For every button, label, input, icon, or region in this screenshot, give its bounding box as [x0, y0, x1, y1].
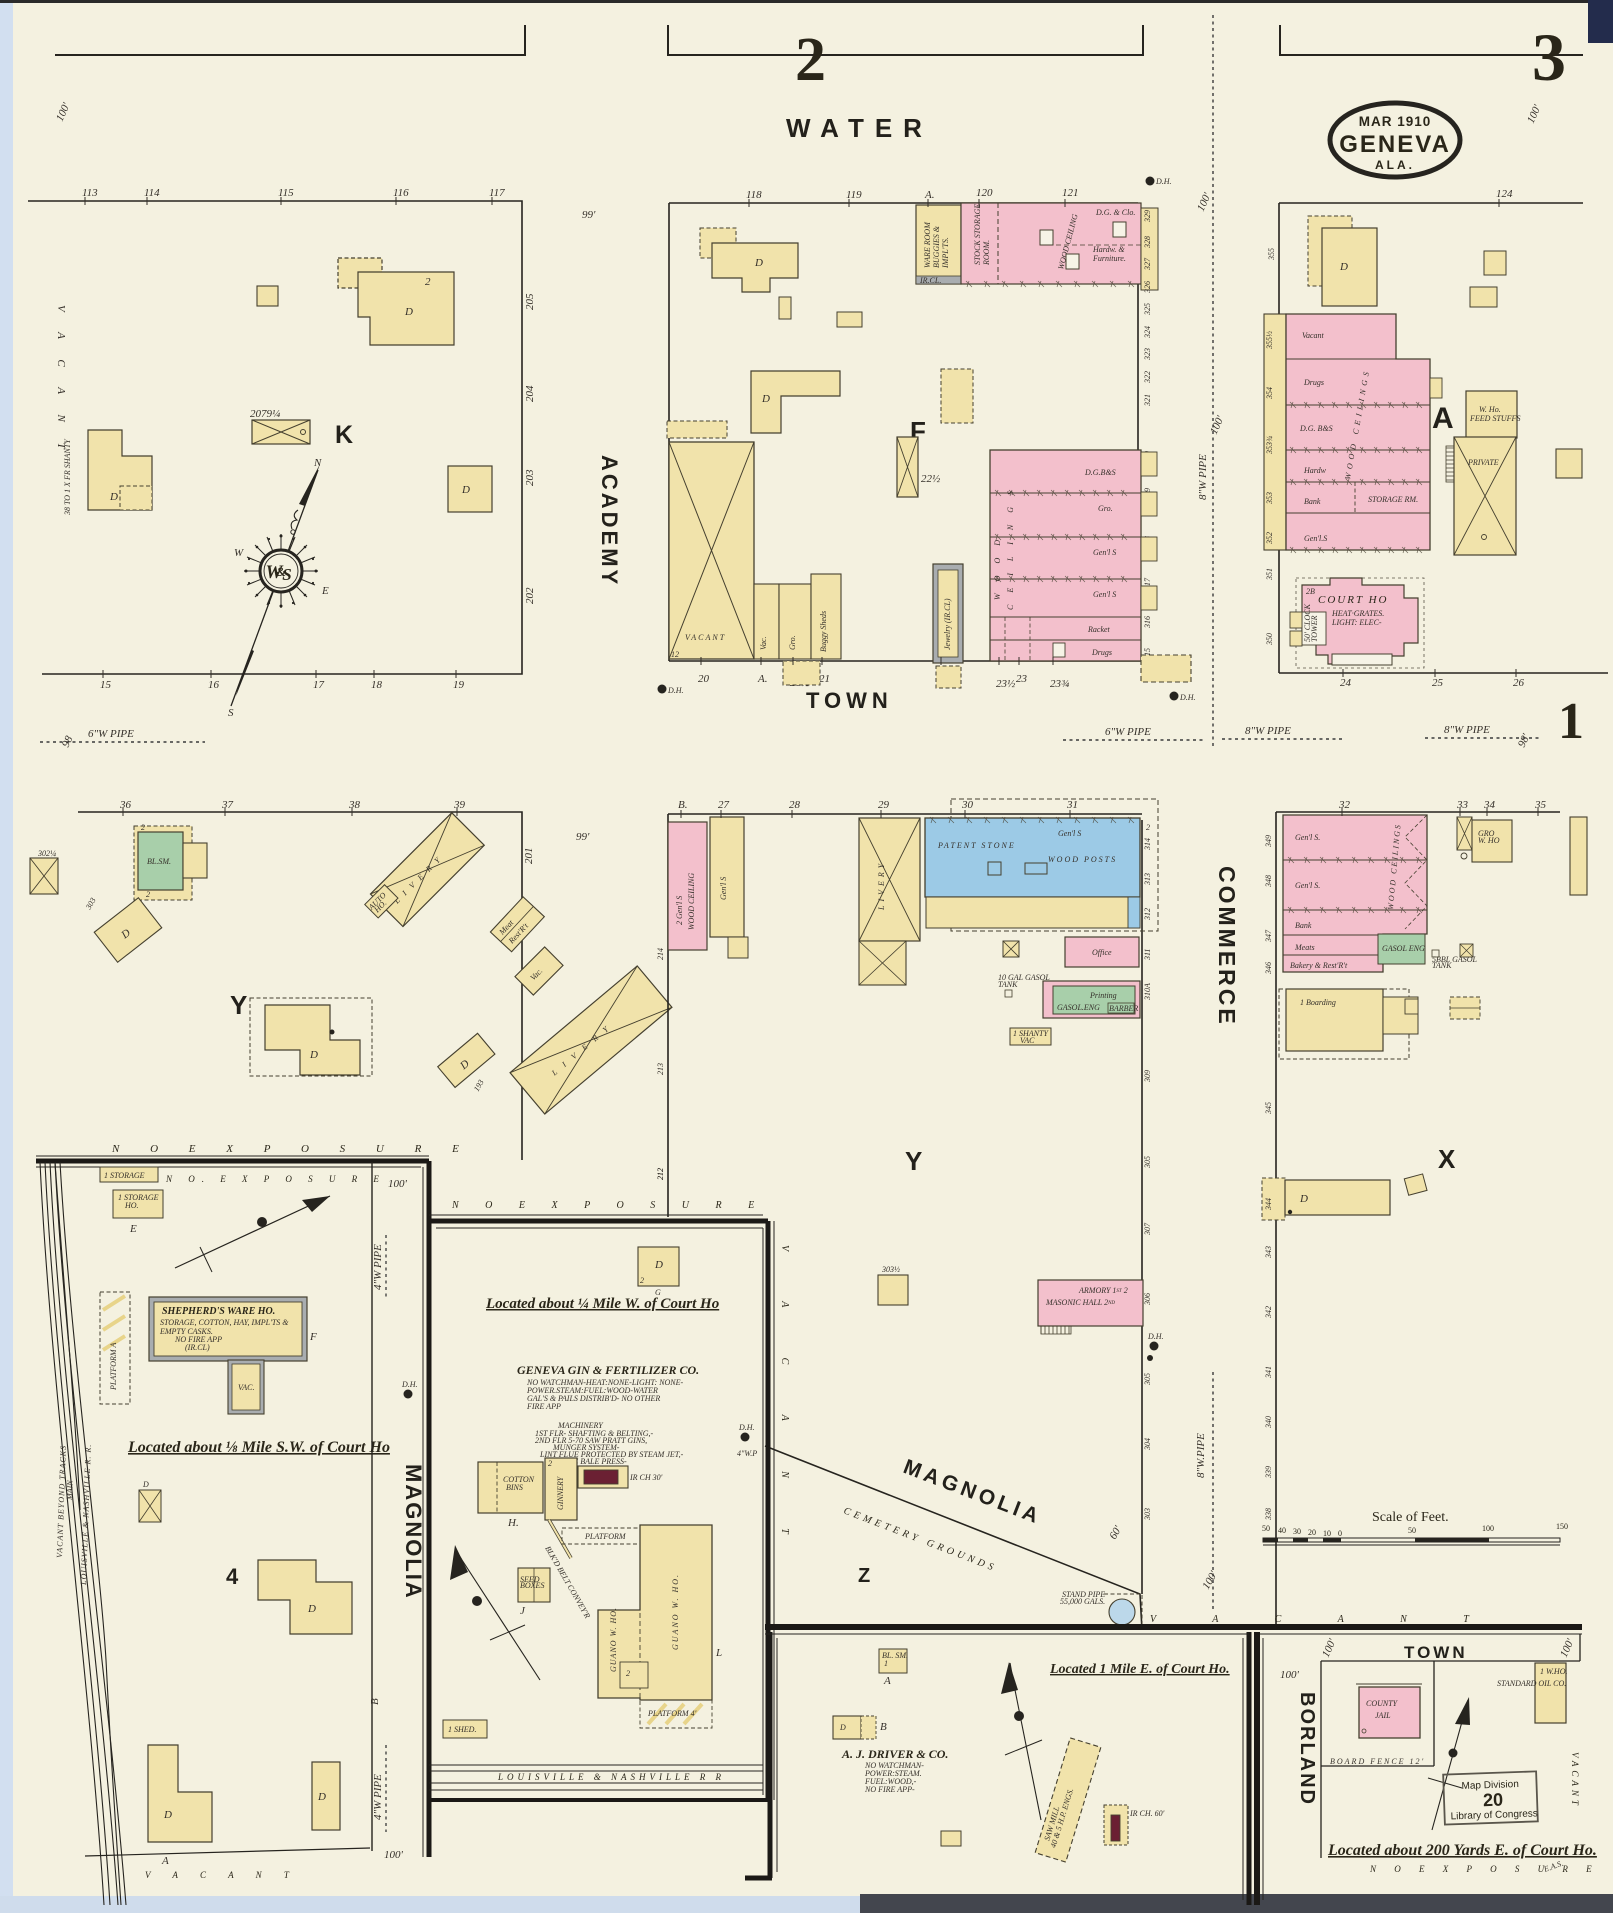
- svg-text:302¼: 302¼: [37, 849, 56, 858]
- svg-text:B: B: [880, 1721, 887, 1733]
- svg-text:Furniture.: Furniture.: [1092, 254, 1126, 263]
- svg-text:8"W PIPE: 8"W PIPE: [1444, 724, 1490, 736]
- svg-text:A: A: [883, 1675, 891, 1687]
- svg-text:8"W PIPE: 8"W PIPE: [1197, 454, 1209, 500]
- svg-text:GASOL.ENG: GASOL.ENG: [1057, 1003, 1100, 1012]
- svg-text:D.H.: D.H.: [1155, 177, 1172, 186]
- svg-text:A. J. DRIVER & CO.: A. J. DRIVER & CO.: [841, 1747, 948, 1761]
- svg-text:D: D: [761, 393, 770, 405]
- svg-text:325: 325: [1143, 303, 1152, 316]
- svg-text:IR.CL.: IR.CL.: [919, 276, 941, 285]
- svg-text:COUNTY: COUNTY: [1366, 1699, 1399, 1708]
- svg-text:201: 201: [523, 848, 535, 865]
- svg-text:32: 32: [1338, 799, 1351, 811]
- svg-text:TOWN: TOWN: [806, 688, 893, 713]
- svg-text:Gen'l S: Gen'l S: [719, 877, 728, 900]
- svg-text:119: 119: [846, 189, 862, 201]
- svg-text:100: 100: [1482, 1524, 1494, 1533]
- svg-text:Hardw. &: Hardw. &: [1092, 245, 1125, 254]
- svg-text:118: 118: [746, 189, 762, 201]
- svg-text:D: D: [1299, 1193, 1308, 1205]
- svg-text:100': 100': [384, 1849, 404, 1861]
- svg-text:D: D: [317, 1791, 326, 1803]
- svg-text:115: 115: [278, 187, 294, 199]
- svg-text:354: 354: [1265, 387, 1274, 400]
- svg-text:339: 339: [1264, 1466, 1273, 1479]
- svg-text:304: 304: [1143, 1438, 1152, 1451]
- svg-text:99': 99': [576, 831, 590, 843]
- svg-text:0: 0: [1338, 1529, 1342, 1538]
- svg-text:IR CH. 60': IR CH. 60': [1129, 1809, 1165, 1818]
- svg-text:Gen'l.S: Gen'l.S: [1304, 534, 1327, 543]
- svg-text:21: 21: [819, 673, 830, 685]
- svg-text:BOARD FENCE 12': BOARD FENCE 12': [1330, 1757, 1425, 1766]
- svg-text:HEAT·GRATES.: HEAT·GRATES.: [1331, 609, 1384, 618]
- svg-text:IMPL'TS.: IMPL'TS.: [941, 237, 950, 269]
- svg-text:Gen'l S: Gen'l S: [1058, 829, 1081, 838]
- svg-text:W. Ho.: W. Ho.: [1479, 405, 1501, 414]
- svg-text:313: 313: [1143, 873, 1152, 886]
- svg-text:1: 1: [1558, 693, 1584, 750]
- svg-text:W. HO: W. HO: [1478, 836, 1500, 845]
- svg-text:NO FIRE APP-: NO FIRE APP-: [864, 1785, 915, 1794]
- svg-text:MAR 1910: MAR 1910: [1359, 114, 1432, 129]
- svg-text:344: 344: [1264, 1198, 1273, 1211]
- svg-text:323: 323: [1143, 348, 1152, 361]
- svg-text:116: 116: [393, 187, 409, 199]
- svg-text:D: D: [461, 484, 470, 496]
- svg-text:124: 124: [1496, 188, 1513, 200]
- svg-text:23¾: 23¾: [1050, 678, 1069, 690]
- svg-text:212: 212: [656, 1168, 665, 1180]
- svg-text:D.H.: D.H.: [401, 1380, 418, 1389]
- svg-text:202: 202: [524, 587, 536, 604]
- svg-text:D.H.: D.H.: [1179, 693, 1196, 702]
- svg-text:Gro.: Gro.: [1098, 504, 1113, 513]
- svg-text:2: 2: [425, 276, 431, 288]
- svg-text:Located about ⅛ Mile S.W. of C: Located about ⅛ Mile S.W. of Court Ho: [127, 1439, 390, 1456]
- svg-text:2: 2: [795, 26, 826, 94]
- svg-text:121: 121: [1062, 187, 1079, 199]
- svg-text:22½: 22½: [921, 473, 940, 485]
- svg-text:214: 214: [656, 948, 665, 960]
- svg-text:Jewelry (IR.CL): Jewelry (IR.CL): [943, 598, 952, 650]
- svg-text:(IR.CL): (IR.CL): [185, 1343, 210, 1352]
- svg-text:VAC: VAC: [1020, 1036, 1035, 1045]
- svg-text:MASONIC HALL 2ND: MASONIC HALL 2ND: [1045, 1298, 1115, 1307]
- svg-text:Meats: Meats: [1294, 943, 1315, 952]
- svg-text:B.: B.: [678, 799, 687, 811]
- svg-text:D.G.B&S: D.G.B&S: [1084, 468, 1116, 477]
- svg-text:BL.SM.: BL.SM.: [147, 857, 171, 866]
- svg-text:307: 307: [1143, 1222, 1152, 1236]
- svg-text:D: D: [163, 1809, 172, 1821]
- svg-text:FEED STUFFS: FEED STUFFS: [1469, 414, 1520, 423]
- svg-text:311: 311: [1143, 949, 1152, 961]
- svg-text:V A C A N T: V A C A N T: [1150, 1614, 1496, 1625]
- svg-text:50: 50: [1408, 1526, 1416, 1535]
- svg-text:1 Boarding: 1 Boarding: [1300, 998, 1336, 1007]
- svg-text:D.H.: D.H.: [667, 686, 684, 695]
- svg-text:19: 19: [453, 679, 465, 691]
- svg-text:STANDARD OIL CO.: STANDARD OIL CO.: [1497, 1679, 1566, 1688]
- svg-text:204: 204: [524, 385, 536, 402]
- svg-text:2079¼: 2079¼: [250, 408, 280, 420]
- svg-text:20: 20: [698, 673, 710, 685]
- svg-text:4: 4: [226, 1564, 239, 1589]
- svg-text:347: 347: [1264, 929, 1273, 943]
- svg-text:A.: A.: [924, 189, 934, 201]
- svg-text:Gen'l S: Gen'l S: [1093, 590, 1116, 599]
- svg-text:35: 35: [1534, 799, 1547, 811]
- svg-text:V A C A N T: V A C A N T: [779, 1245, 790, 1558]
- svg-text:PRIVATE: PRIVATE: [1467, 458, 1499, 467]
- svg-text:GUANO W. HO.: GUANO W. HO.: [609, 1607, 618, 1672]
- svg-text:30: 30: [961, 799, 974, 811]
- svg-text:343: 343: [1264, 1246, 1273, 1259]
- svg-text:150: 150: [1556, 1522, 1568, 1531]
- svg-text:&: &: [276, 564, 286, 579]
- svg-text:25: 25: [1432, 677, 1444, 689]
- svg-text:MAIN: MAIN: [65, 1480, 75, 1502]
- svg-text:JAIL: JAIL: [1375, 1711, 1391, 1720]
- svg-text:27: 27: [718, 799, 730, 811]
- svg-text:K: K: [335, 421, 353, 449]
- svg-text:GINNERY: GINNERY: [556, 1475, 565, 1510]
- svg-text:1 W.HO.: 1 W.HO.: [1540, 1667, 1567, 1676]
- svg-text:TOWER: TOWER: [1310, 615, 1319, 642]
- svg-text:BARBER: BARBER: [1109, 1004, 1138, 1013]
- svg-text:Drugs: Drugs: [1091, 648, 1112, 657]
- svg-text:Located about 200 Yards E. of: Located about 200 Yards E. of Court Ho.: [1327, 1842, 1597, 1859]
- svg-text:ACADEMY: ACADEMY: [597, 455, 622, 587]
- svg-text:W O O D: W O O D: [993, 535, 1002, 600]
- svg-text:355½: 355½: [1265, 331, 1274, 350]
- svg-text:213: 213: [656, 1063, 665, 1075]
- svg-text:1: 1: [884, 1659, 888, 1668]
- svg-text:VACANT: VACANT: [1570, 1752, 1580, 1809]
- svg-text:4"W PIPE: 4"W PIPE: [372, 1774, 384, 1820]
- svg-text:Racket: Racket: [1087, 625, 1111, 634]
- svg-text:349: 349: [1264, 835, 1273, 848]
- svg-text:D.H.: D.H.: [738, 1423, 755, 1432]
- svg-text:1 SHED.: 1 SHED.: [448, 1725, 476, 1734]
- svg-text:E: E: [129, 1223, 137, 1235]
- svg-text:340: 340: [1264, 1416, 1273, 1429]
- svg-text:B: B: [369, 1698, 381, 1705]
- svg-text:ALA.: ALA.: [1375, 158, 1415, 172]
- svg-text:Printing: Printing: [1089, 991, 1117, 1000]
- svg-text:6"W PIPE: 6"W PIPE: [1105, 726, 1151, 738]
- svg-text:H.: H.: [507, 1517, 519, 1529]
- svg-text:MAGNOLIA: MAGNOLIA: [401, 1464, 426, 1600]
- svg-text:353¾: 353¾: [1265, 436, 1274, 455]
- svg-text:2: 2: [626, 1669, 630, 1678]
- svg-text:Located 1 Mile E. of Court Ho.: Located 1 Mile E. of Court Ho.: [1049, 1662, 1230, 1677]
- svg-text:117: 117: [489, 187, 505, 199]
- svg-text:LIGHT: ELEC-: LIGHT: ELEC-: [1331, 618, 1382, 627]
- svg-text:329: 329: [1143, 210, 1152, 223]
- svg-text:30: 30: [1293, 1527, 1301, 1536]
- svg-text:348: 348: [1264, 875, 1273, 888]
- svg-text:15: 15: [100, 679, 112, 691]
- svg-text:STORAGE, COTTON, HAY, IMPL'TS: STORAGE, COTTON, HAY, IMPL'TS &: [160, 1318, 289, 1327]
- svg-text:3: 3: [1532, 19, 1566, 95]
- svg-text:D.G. B&S: D.G. B&S: [1299, 424, 1333, 433]
- svg-text:N: N: [313, 457, 322, 469]
- svg-text:WOOD POSTS: WOOD POSTS: [1048, 855, 1117, 864]
- svg-text:F: F: [309, 1331, 317, 1343]
- svg-text:SHEPHERD'S WARE HO.: SHEPHERD'S WARE HO.: [162, 1306, 275, 1317]
- svg-text:20: 20: [1483, 1790, 1504, 1811]
- svg-text:PLATFORM: PLATFORM: [584, 1532, 627, 1541]
- svg-text:BOXES: BOXES: [520, 1581, 544, 1590]
- svg-text:WOOD CEILING: WOOD CEILING: [687, 873, 696, 930]
- svg-text:33: 33: [1456, 799, 1469, 811]
- svg-text:326: 326: [1143, 281, 1152, 294]
- svg-text:Y: Y: [230, 990, 247, 1020]
- svg-text:314: 314: [1143, 838, 1152, 851]
- svg-text:IR CH 30': IR CH 30': [629, 1473, 663, 1482]
- svg-text:18: 18: [371, 679, 383, 691]
- svg-text:12: 12: [671, 650, 679, 659]
- svg-text:BORLAND: BORLAND: [1296, 1692, 1318, 1806]
- svg-text:23: 23: [1016, 673, 1028, 685]
- svg-text:WATER: WATER: [786, 113, 933, 143]
- svg-text:COURT HO: COURT HO: [1318, 594, 1389, 606]
- svg-text:17: 17: [313, 679, 325, 691]
- svg-text:312: 312: [1143, 908, 1152, 921]
- svg-text:1 STORAGE: 1 STORAGE: [104, 1171, 145, 1180]
- svg-text:99': 99': [582, 209, 596, 221]
- svg-text:2: 2: [146, 890, 150, 899]
- svg-text:D: D: [654, 1259, 663, 1271]
- svg-text:205: 205: [524, 293, 536, 310]
- svg-text:L: L: [715, 1647, 722, 1659]
- svg-text:D: D: [142, 1480, 149, 1489]
- svg-text:X: X: [1438, 1144, 1456, 1174]
- svg-text:100': 100': [388, 1178, 408, 1190]
- svg-text:Vacant: Vacant: [1302, 331, 1325, 340]
- svg-text:40: 40: [1278, 1526, 1286, 1535]
- svg-text:328: 328: [1143, 236, 1152, 249]
- svg-text:N O E X P O S U R E: N O E X P O S U R E: [1369, 1864, 1600, 1874]
- svg-text:Scale of Feet.: Scale of Feet.: [1372, 1510, 1449, 1525]
- svg-text:D: D: [307, 1603, 316, 1615]
- svg-text:Z: Z: [858, 1565, 870, 1587]
- svg-text:341: 341: [1264, 1366, 1273, 1379]
- svg-text:31: 31: [1066, 799, 1078, 811]
- svg-text:Gro.: Gro.: [788, 635, 797, 650]
- svg-text:GASOL ENG: GASOL ENG: [1382, 944, 1425, 953]
- svg-text:303½: 303½: [881, 1265, 900, 1274]
- svg-text:2: 2: [141, 823, 145, 832]
- svg-text:26: 26: [1513, 677, 1525, 689]
- svg-text:114: 114: [144, 187, 160, 199]
- svg-text:Vac.: Vac.: [759, 636, 768, 650]
- svg-text:34: 34: [1483, 799, 1496, 811]
- svg-text:A: A: [161, 1855, 169, 1867]
- svg-text:TANK: TANK: [998, 980, 1018, 989]
- svg-text:D: D: [839, 1723, 846, 1732]
- svg-text:LOUISVILLE & NASHVILLE R R: LOUISVILLE & NASHVILLE R R: [497, 1772, 725, 1782]
- svg-text:303: 303: [1143, 1508, 1152, 1521]
- svg-text:6"W PIPE: 6"W PIPE: [88, 728, 134, 740]
- svg-text:342: 342: [1264, 1306, 1273, 1319]
- svg-text:D: D: [754, 257, 763, 269]
- svg-text:346: 346: [1264, 962, 1273, 975]
- svg-text:STOCK STORAGE: STOCK STORAGE: [973, 204, 982, 265]
- svg-text:COMMERCE: COMMERCE: [1214, 866, 1240, 1027]
- svg-text:353: 353: [1265, 492, 1274, 505]
- svg-text:305: 305: [1143, 1156, 1152, 1169]
- svg-text:2 Gen'l S: 2 Gen'l S: [675, 896, 684, 925]
- svg-text:28: 28: [789, 799, 801, 811]
- svg-text:10: 10: [1323, 1529, 1331, 1538]
- svg-text:4"W PIPE: 4"W PIPE: [372, 1244, 384, 1290]
- svg-text:W: W: [234, 547, 244, 559]
- svg-text:120: 120: [976, 187, 993, 199]
- svg-text:2B: 2B: [1306, 587, 1315, 596]
- svg-text:Y: Y: [905, 1146, 922, 1176]
- svg-text:VAC.: VAC.: [238, 1383, 255, 1392]
- svg-text:Drugs: Drugs: [1303, 378, 1324, 387]
- svg-text:PATENT STONE: PATENT STONE: [937, 841, 1016, 850]
- svg-text:TOWN: TOWN: [1404, 1643, 1468, 1662]
- svg-text:55,000 GALS.: 55,000 GALS.: [1060, 1597, 1105, 1606]
- svg-text:351: 351: [1265, 568, 1274, 581]
- svg-text:Hardw: Hardw: [1303, 466, 1327, 475]
- svg-text:D: D: [404, 306, 413, 318]
- svg-text:E: E: [321, 585, 329, 597]
- svg-text:D: D: [1339, 261, 1348, 273]
- svg-text:338: 338: [1264, 1508, 1273, 1521]
- svg-text:2: 2: [1146, 823, 1150, 832]
- svg-text:8"W PIPE: 8"W PIPE: [1245, 725, 1291, 737]
- svg-text:8"W.PIPE: 8"W.PIPE: [1195, 1433, 1207, 1478]
- svg-text:VACANT: VACANT: [685, 633, 726, 642]
- svg-text:N O. E X P O S U R E: N O. E X P O S U R E: [165, 1174, 386, 1184]
- svg-text:Gen'l S: Gen'l S: [1093, 548, 1116, 557]
- svg-text:305: 305: [1143, 1373, 1152, 1386]
- svg-text:Bank: Bank: [1295, 921, 1312, 930]
- svg-text:D.G. & Clo.: D.G. & Clo.: [1095, 208, 1135, 217]
- svg-text:37: 37: [221, 799, 234, 811]
- svg-text:FIRE APP: FIRE APP: [526, 1402, 561, 1411]
- svg-text:TANK: TANK: [1432, 961, 1452, 970]
- svg-text:Gen'l S.: Gen'l S.: [1295, 833, 1320, 842]
- svg-text:203: 203: [524, 469, 536, 486]
- svg-text:V A C A N T: V A C A N T: [145, 1870, 299, 1880]
- svg-text:24: 24: [1340, 677, 1352, 689]
- svg-text:Located about ¼ Mile W. of Cou: Located about ¼ Mile W. of Court Ho: [485, 1296, 719, 1312]
- svg-text:A.: A.: [757, 673, 767, 685]
- svg-text:GUANO W. HO.: GUANO W. HO.: [671, 1573, 680, 1650]
- svg-text:4"W.P: 4"W.P: [737, 1449, 757, 1458]
- svg-text:38 TO 1 X FR SHANTY: 38 TO 1 X FR SHANTY: [63, 438, 72, 516]
- svg-text:316: 316: [1143, 616, 1152, 629]
- svg-text:BINS: BINS: [506, 1483, 523, 1492]
- svg-text:23½: 23½: [996, 678, 1015, 690]
- svg-text:Bakery & Rest'R't: Bakery & Rest'R't: [1290, 961, 1348, 970]
- svg-text:39: 39: [453, 799, 466, 811]
- svg-text:D.H.: D.H.: [1147, 1332, 1164, 1341]
- svg-text:350: 350: [1265, 633, 1274, 646]
- svg-text:Bank: Bank: [1304, 497, 1321, 506]
- svg-text:310A: 310A: [1143, 983, 1152, 1001]
- svg-text:C E I L I N G S: C E I L I N G S: [1006, 486, 1015, 610]
- svg-text:HO.: HO.: [124, 1201, 139, 1210]
- svg-text:327: 327: [1143, 257, 1152, 271]
- svg-text:50: 50: [1262, 1524, 1270, 1533]
- svg-text:STORAGE RM.: STORAGE RM.: [1368, 495, 1418, 504]
- svg-text:Office: Office: [1092, 948, 1112, 957]
- svg-text:322: 322: [1143, 371, 1152, 384]
- svg-text:ROOM.: ROOM.: [982, 240, 991, 266]
- svg-text:16: 16: [208, 679, 220, 691]
- svg-text:S: S: [228, 707, 234, 719]
- svg-text:29: 29: [878, 799, 890, 811]
- svg-text:309: 309: [1143, 1070, 1152, 1083]
- svg-text:38: 38: [348, 799, 361, 811]
- svg-text:20: 20: [1308, 1528, 1316, 1537]
- svg-text:GENEVA GIN & FERTILIZER CO.: GENEVA GIN & FERTILIZER CO.: [517, 1363, 699, 1377]
- svg-text:Gen'l S.: Gen'l S.: [1295, 881, 1320, 890]
- svg-text:BUGGIES &: BUGGIES &: [932, 225, 941, 268]
- svg-text:LIVERY: LIVERY: [877, 860, 886, 911]
- svg-text:2: 2: [640, 1276, 644, 1285]
- svg-text:352: 352: [1265, 532, 1274, 545]
- svg-text:113: 113: [82, 187, 98, 199]
- svg-text:D: D: [109, 491, 118, 503]
- svg-text:PLATFORM A: PLATFORM A: [109, 1343, 118, 1391]
- svg-text:N O E X P O S U R E: N O E X P O S U R E: [111, 1143, 473, 1155]
- svg-text:324: 324: [1143, 326, 1152, 339]
- svg-text:D: D: [309, 1049, 318, 1061]
- svg-text:2: 2: [548, 1459, 552, 1468]
- svg-text:355: 355: [1267, 248, 1276, 261]
- svg-text:A: A: [1432, 402, 1454, 435]
- svg-text:GENEVA: GENEVA: [1339, 131, 1451, 158]
- svg-text:N O E X P O S U R E: N O E X P O S U R E: [451, 1200, 766, 1211]
- svg-text:321: 321: [1143, 394, 1152, 407]
- svg-text:345: 345: [1264, 1102, 1273, 1115]
- svg-text:V A C A N T: V A C A N T: [55, 305, 67, 458]
- svg-text:PLATFORM 4': PLATFORM 4': [647, 1709, 697, 1718]
- svg-text:WARE ROOM: WARE ROOM: [923, 221, 932, 268]
- svg-text:306: 306: [1143, 1293, 1152, 1306]
- svg-text:36: 36: [119, 799, 132, 811]
- svg-text:Buggy Sheds: Buggy Sheds: [819, 611, 828, 652]
- svg-text:100': 100': [1280, 1669, 1300, 1681]
